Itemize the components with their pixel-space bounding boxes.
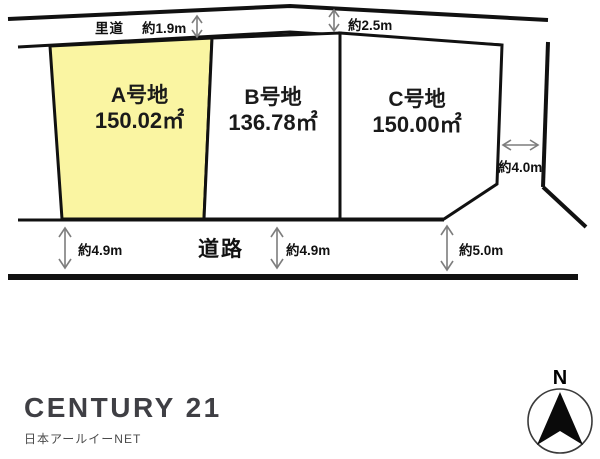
satomichi-north-line	[8, 6, 548, 20]
arrow-5-0m	[441, 226, 453, 270]
east-road-line	[543, 42, 548, 187]
plot-c-name: C号地	[338, 87, 496, 112]
dim-label-4-0m: 約4.0m	[498, 156, 542, 176]
east-road-diagonal-line	[543, 187, 586, 227]
plot-a-name: A号地	[62, 83, 217, 108]
plot-b-label: B号地 136.78㎡	[198, 85, 348, 135]
arrow-4-0m	[503, 140, 538, 150]
plot-b-area: 136.78㎡	[198, 110, 348, 135]
plot-a-label: A号地 150.02㎡	[62, 83, 217, 133]
century21-logo: CENTURY 21	[24, 392, 222, 424]
satomichi-label: 里道	[95, 17, 124, 37]
plot-c-label: C号地 150.00㎡	[338, 87, 496, 137]
plot-a-area: 150.02㎡	[62, 108, 217, 133]
plot-c-area: 150.00㎡	[338, 112, 496, 137]
dim-label-5-0m: 約5.0m	[459, 239, 503, 259]
arrow-4-9m-left	[59, 228, 71, 268]
road-label: 道路	[198, 233, 244, 263]
plot-b-name: B号地	[198, 85, 348, 110]
north-compass-icon	[528, 389, 592, 453]
plot-diagram-graphics	[0, 0, 600, 459]
dim-label-1-9m: 約1.9m	[142, 17, 186, 37]
compass-north-label: N	[547, 367, 573, 390]
land-plot-diagram: A号地 150.02㎡ B号地 136.78㎡ C号地 150.00㎡ 里道 約…	[0, 0, 600, 459]
dim-label-2-5m: 約2.5m	[348, 14, 392, 34]
arrow-2-5m	[329, 10, 339, 31]
arrow-1-9m	[192, 16, 202, 37]
company-name: 日本アールイーNET	[24, 430, 141, 447]
dim-label-4-9m-mid: 約4.9m	[286, 239, 330, 259]
dim-label-4-9m-left: 約4.9m	[78, 239, 122, 259]
arrow-4-9m-mid	[271, 228, 283, 268]
